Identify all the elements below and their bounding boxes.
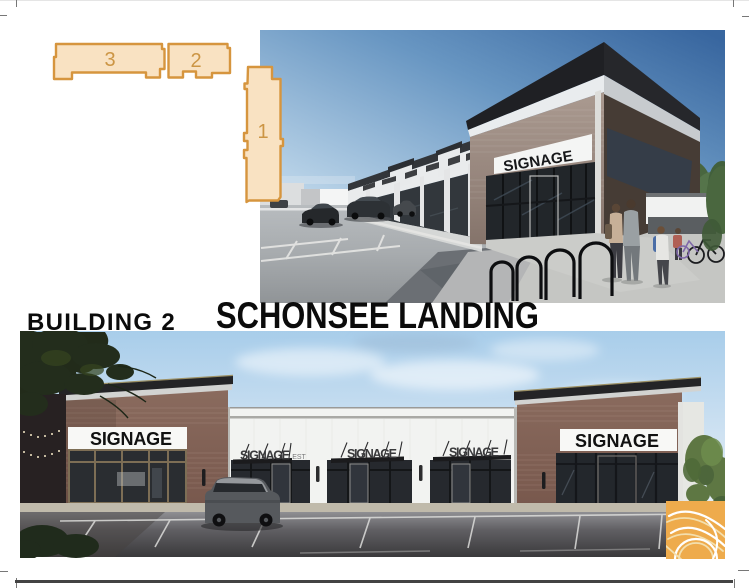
svg-text:3: 3 xyxy=(104,49,115,71)
svg-text:2: 2 xyxy=(190,50,201,72)
svg-text:1: 1 xyxy=(257,121,268,143)
